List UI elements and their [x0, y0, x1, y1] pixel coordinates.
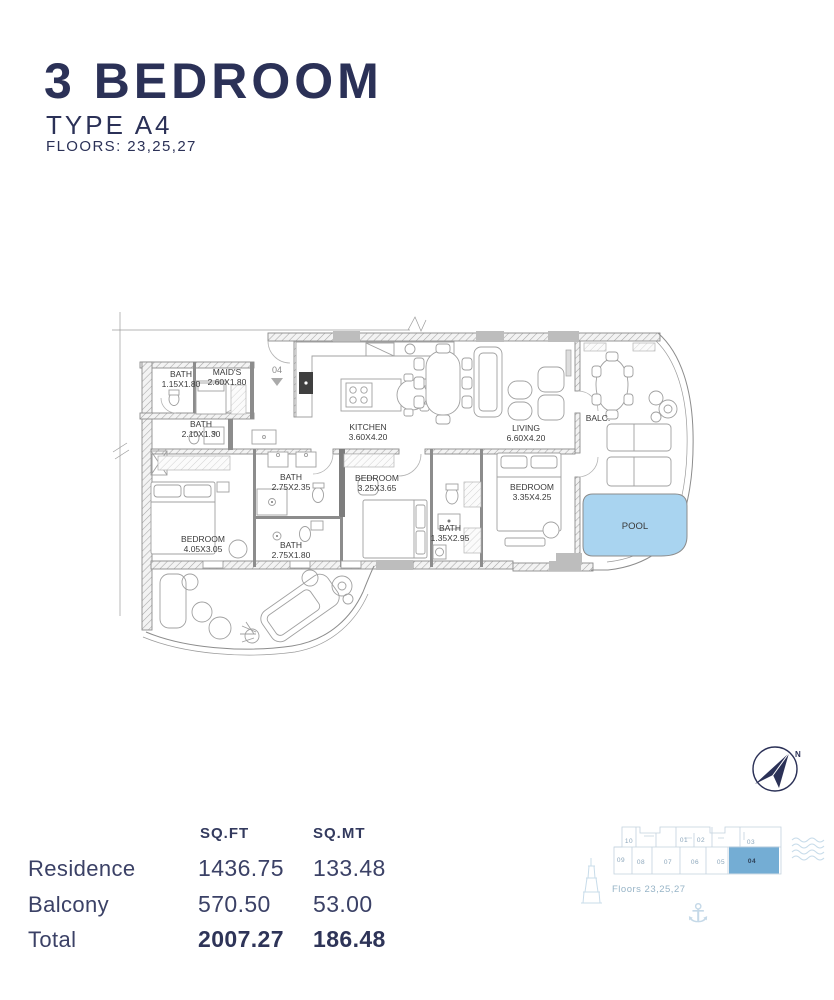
room-label-bath5-name: BATH: [280, 540, 302, 550]
keyplan-unit-07: 07: [664, 859, 672, 866]
keyplan: 10 01 02 03 09 08 07 06 05 04 Floors 23,…: [581, 827, 824, 929]
tower-icon: [581, 858, 602, 903]
unit-entry-marker: 04: [271, 365, 283, 386]
pool-label: POOL: [622, 521, 648, 532]
room-label-bedroom3-dims: 3.35X4.25: [513, 492, 552, 502]
small-bath-furniture: [433, 482, 481, 559]
row-label-residence: Residence: [28, 856, 136, 882]
room-label-living-name: LIVING: [512, 423, 540, 433]
room-label-living-dims: 6.60X4.20: [507, 433, 546, 443]
room-label-kitchen-name: KITCHEN: [349, 422, 386, 432]
balcony-sqft: 570.50: [198, 891, 271, 918]
room-label-bedroom3-name: BEDROOM: [510, 482, 554, 492]
room-label-bedroom2-name: BEDROOM: [355, 473, 399, 483]
compass-north-label: N: [795, 750, 801, 759]
brochure-page: 3 BEDROOM TYPE A4 FLOORS: 23,25,27: [0, 0, 834, 1000]
room-label-bedroom1-dims: 4.05X3.05: [184, 544, 223, 554]
entry-arrow-icon: [271, 378, 283, 386]
keyplan-unit-09: 09: [617, 857, 625, 864]
room-label-balcony: BALC.: [586, 413, 611, 423]
room-label-bath1-dims: 1.15X1.80: [162, 379, 201, 389]
waves-icon: [792, 838, 824, 860]
keyplan-unit-03: 03: [747, 839, 755, 846]
col-header-sqmt: SQ.MT: [313, 825, 366, 842]
total-sqmt: 186.48: [313, 926, 386, 953]
keyplan-unit-04: 04: [748, 858, 756, 865]
terrace-furniture: [160, 570, 353, 646]
room-label-bath4-dims: 1.35X2.95: [431, 533, 470, 543]
balcony-sqmt: 53.00: [313, 891, 373, 918]
keyplan-unit-02: 02: [697, 837, 705, 844]
floor-plan: 04 BATH 1.15X1.80 MAID'S 2.60X1.80 BATH …: [0, 0, 834, 1000]
room-label-bedroom2-dims: 3.25X3.65: [358, 483, 397, 493]
room-label-bath3-dims: 2.75X2.35: [272, 482, 311, 492]
bedroom3-furniture: [497, 453, 582, 563]
keyplan-floors-label: Floors 23,25,27: [612, 884, 686, 895]
keyplan-unit-10: 10: [625, 838, 633, 845]
room-label-maids-dims: 2.60X1.80: [208, 377, 247, 387]
row-label-balcony: Balcony: [28, 892, 109, 918]
room-label-kitchen-dims: 3.60X4.20: [349, 432, 388, 442]
residence-sqmt: 133.48: [313, 855, 386, 882]
room-label-bath3-name: BATH: [280, 472, 302, 482]
keyplan-unit-05: 05: [717, 859, 725, 866]
room-label-bath5-dims: 2.75X1.80: [272, 550, 311, 560]
room-label-bedroom1-name: BEDROOM: [181, 534, 225, 544]
col-header-sqft: SQ.FT: [200, 825, 249, 842]
keyplan-unit-08: 08: [637, 859, 645, 866]
residence-sqft: 1436.75: [198, 855, 284, 882]
room-label-bath2-dims: 2.10X1.30: [182, 429, 221, 439]
living-furniture: [474, 347, 571, 420]
room-label-bath1-name: BATH: [170, 369, 192, 379]
anchor-icon: ⚓: [686, 899, 709, 929]
row-label-total: Total: [28, 927, 76, 953]
compass: N: [753, 747, 801, 791]
total-sqft: 2007.27: [198, 926, 284, 953]
second-bath-furniture: [273, 521, 323, 542]
unit-number-label: 04: [272, 365, 282, 375]
keyplan-unit-01: 01: [680, 837, 688, 844]
keyplan-unit-06: 06: [691, 859, 699, 866]
room-label-maids-name: MAID'S: [213, 367, 242, 377]
room-label-bath4-name: BATH: [439, 523, 461, 533]
room-label-bath2-name: BATH: [190, 419, 212, 429]
